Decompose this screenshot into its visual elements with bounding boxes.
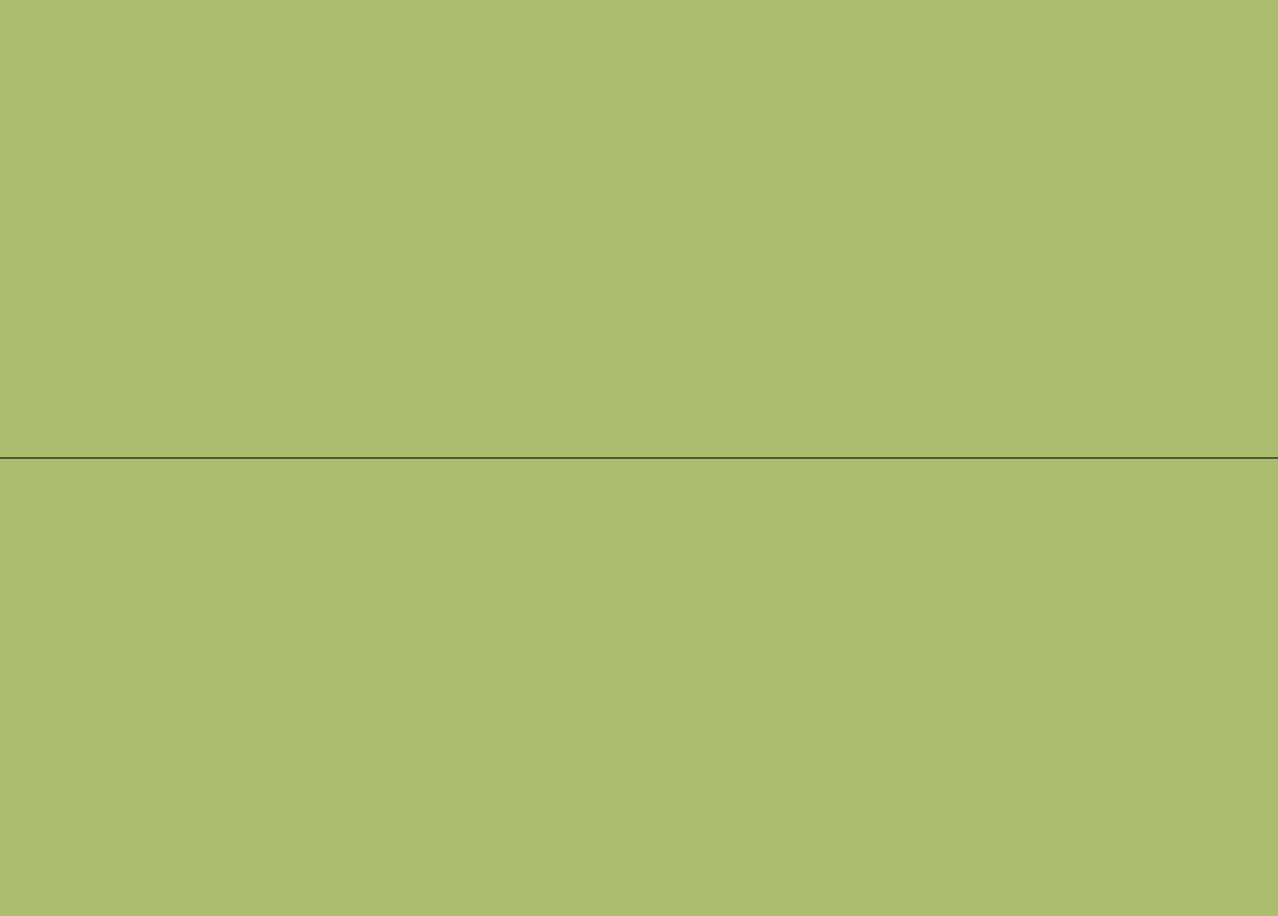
hex-wargame-map: B1B2B3B4B5B6B7B8B9B10C1C2C3C4C5C6C7C8C9C… bbox=[0, 0, 1278, 916]
board-20-terrain bbox=[0, 458, 1278, 916]
board-51-terrain bbox=[0, 0, 1278, 458]
map-stage: B1B2B3B4B5B6B7B8B9B10C1C2C3C4C5C6C7C8C9C… bbox=[0, 0, 1278, 916]
